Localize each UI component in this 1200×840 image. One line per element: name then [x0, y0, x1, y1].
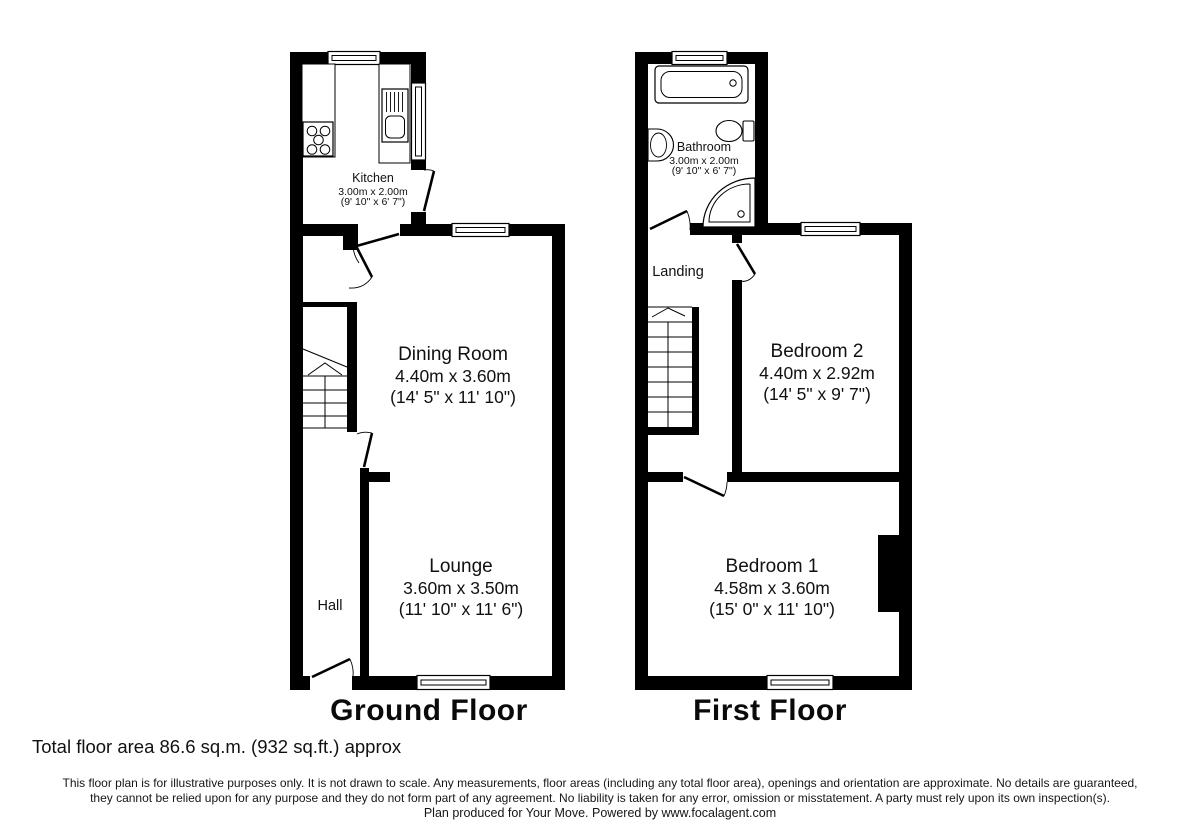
bathroom-label: Bathroom 3.00m x 2.00m (9' 10" x 6' 7") [669, 140, 738, 177]
ground-floor-title: Ground Floor [330, 694, 528, 728]
room-name: Bedroom 2 [759, 340, 875, 363]
room-size-metric: 4.58m x 3.60m [709, 578, 835, 599]
dining-window [452, 224, 509, 237]
landing-label: Landing [652, 264, 704, 280]
room-name: Bedroom 1 [709, 555, 835, 578]
bedroom2-label: Bedroom 2 4.40m x 2.92m (14' 5" x 9' 7") [759, 340, 875, 404]
lounge-window [417, 676, 490, 690]
lounge-label: Lounge 3.60m x 3.50m (11' 10" x 11' 6") [399, 555, 524, 619]
kitchen-window-top [328, 52, 380, 65]
stairs-up-arrow [652, 308, 685, 317]
hall-label: Hall [318, 598, 343, 614]
dining-room-label: Dining Room 4.40m x 3.60m (14' 5" x 11' … [390, 343, 516, 407]
chimney-breast [878, 535, 900, 612]
toilet [716, 121, 754, 142]
room-size-metric: 3.60m x 3.50m [399, 578, 524, 599]
room-name: Lounge [399, 555, 524, 578]
room-size-imperial: (11' 10" x 11' 6") [399, 599, 524, 620]
disclaimer-line-1: This floor plan is for illustrative purp… [0, 776, 1200, 790]
room-size-metric: 4.40m x 3.60m [390, 366, 516, 387]
room-size-metric: 4.40m x 2.92m [759, 363, 875, 384]
kitchen-fixtures [302, 64, 410, 163]
plan-credit: Plan produced for Your Move. Powered by … [0, 806, 1200, 820]
bedroom2-window [801, 223, 860, 236]
kitchen-label: Kitchen 3.00m x 2.00m (9' 10" x 6' 7") [338, 171, 407, 208]
disclaimer-line-2: they cannot be relied upon for any purpo… [0, 791, 1200, 805]
dining-lounge-door [357, 432, 372, 467]
floorplan-page: Kitchen 3.00m x 2.00m (9' 10" x 6' 7") D… [0, 0, 1200, 840]
room-size-imperial: (14' 5" x 11' 10") [390, 387, 516, 408]
hall-top-door [349, 244, 372, 288]
room-name: Dining Room [390, 343, 516, 366]
front-door [312, 659, 353, 677]
stairs-up-arrow [308, 363, 342, 375]
ground-staircase [303, 349, 347, 428]
floorplan-graphics [0, 0, 1200, 735]
room-size-imperial: (9' 10" x 6' 7") [669, 166, 738, 177]
corner-shower [703, 178, 755, 227]
bedroom1-window [767, 676, 833, 690]
kitchen-hall-door [353, 234, 399, 263]
room-size-imperial: (15' 0" x 11' 10") [709, 599, 835, 620]
bathroom-window [672, 52, 727, 65]
room-size-imperial: (9' 10" x 6' 7") [338, 197, 407, 208]
sink-bowl [386, 116, 405, 138]
bedroom1-label: Bedroom 1 4.58m x 3.60m (15' 0" x 11' 10… [709, 555, 835, 619]
room-name: Bathroom [669, 140, 738, 156]
kitchen-window-side [412, 83, 426, 160]
first-staircase [648, 307, 692, 427]
first-floor-title: First Floor [693, 694, 847, 728]
room-name: Hall [318, 598, 343, 614]
bathtub [655, 66, 748, 103]
room-name: Kitchen [338, 171, 407, 187]
total-floor-area: Total floor area 86.6 sq.m. (932 sq.ft.)… [32, 736, 401, 758]
room-name: Landing [652, 264, 704, 280]
room-size-imperial: (14' 5" x 9' 7") [759, 384, 875, 405]
